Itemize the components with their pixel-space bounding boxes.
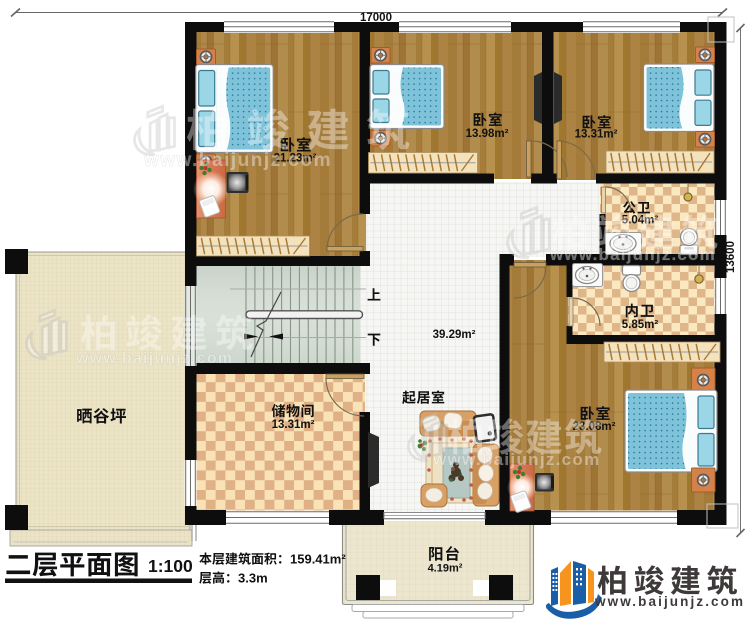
svg-text:39.29m²: 39.29m²: [433, 329, 476, 341]
svg-text:13.98m²: 13.98m²: [466, 128, 509, 140]
svg-text:13600: 13600: [725, 241, 737, 273]
svg-text:13.31m²: 13.31m²: [272, 419, 315, 431]
svg-text:www.baijunjz.com: www.baijunjz.com: [75, 350, 233, 367]
svg-text:3.3m: 3.3m: [238, 571, 268, 586]
svg-text:www.baijunjz.com: www.baijunjz.com: [549, 245, 716, 264]
svg-text:1:100: 1:100: [148, 556, 193, 576]
svg-text:www.baijunjz.com: www.baijunjz.com: [594, 594, 745, 609]
svg-text:4.19m²: 4.19m²: [428, 563, 463, 575]
svg-text:www.baijunjz.com: www.baijunjz.com: [143, 150, 332, 171]
svg-text:13.31m²: 13.31m²: [575, 129, 618, 141]
svg-text:159.41m²: 159.41m²: [290, 552, 346, 567]
svg-text:17000: 17000: [360, 12, 392, 24]
svg-text:www.baijunjz.com: www.baijunjz.com: [432, 450, 601, 469]
svg-text:5.85m²: 5.85m²: [622, 319, 659, 331]
